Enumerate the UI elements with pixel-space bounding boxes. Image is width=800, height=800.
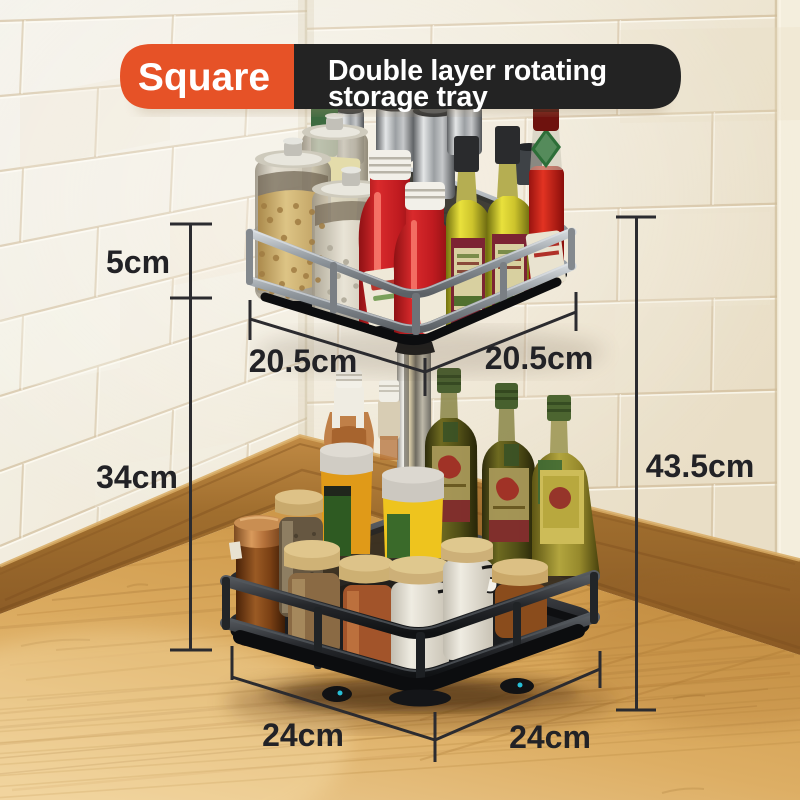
svg-text:5cm: 5cm — [106, 244, 170, 280]
svg-text:Square: Square — [138, 56, 270, 99]
svg-text:34cm: 34cm — [96, 459, 178, 495]
svg-text:24cm: 24cm — [262, 717, 344, 753]
svg-text:20.5cm: 20.5cm — [485, 340, 594, 376]
svg-text:24cm: 24cm — [509, 719, 591, 755]
svg-text:storage tray: storage tray — [328, 81, 488, 113]
svg-text:20.5cm: 20.5cm — [249, 343, 358, 379]
svg-text:43.5cm: 43.5cm — [646, 448, 755, 484]
